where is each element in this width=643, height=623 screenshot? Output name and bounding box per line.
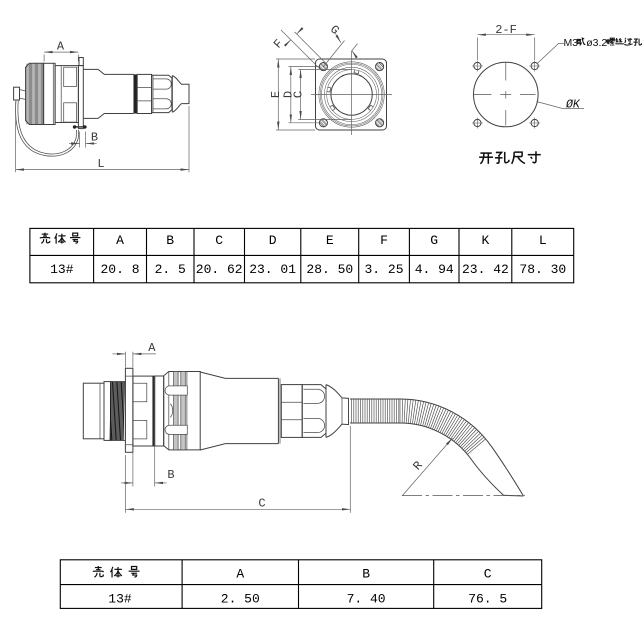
svg-text:K: K [481, 233, 489, 248]
svg-text:ø3.2: ø3.2 [586, 37, 607, 49]
svg-text:G: G [430, 233, 438, 248]
svg-text:4. 94: 4. 94 [415, 262, 454, 277]
svg-text:78. 30: 78. 30 [519, 262, 566, 277]
svg-text:L: L [97, 157, 104, 171]
svg-text:B: B [362, 566, 370, 581]
svg-text:L: L [539, 233, 547, 248]
svg-text:23. 42: 23. 42 [462, 262, 509, 277]
svg-text:A: A [236, 566, 244, 581]
svg-text:B: B [167, 468, 174, 482]
svg-text:E: E [326, 233, 334, 248]
svg-text:23. 01: 23. 01 [249, 262, 296, 277]
svg-text:20. 8: 20. 8 [100, 262, 139, 277]
svg-text:20. 62: 20. 62 [196, 262, 243, 277]
svg-text:76. 5: 76. 5 [468, 592, 507, 607]
svg-text:A: A [116, 233, 124, 248]
svg-text:2-F: 2-F [495, 23, 517, 37]
svg-text:F: F [380, 233, 388, 248]
svg-text:28. 50: 28. 50 [306, 262, 353, 277]
svg-text:2. 50: 2. 50 [221, 592, 260, 607]
svg-text:7. 40: 7. 40 [347, 592, 386, 607]
svg-text:A: A [57, 40, 65, 54]
svg-text:C: C [484, 566, 492, 581]
svg-text:C: C [258, 497, 265, 511]
svg-text:B: B [91, 131, 98, 145]
svg-text:13#: 13# [108, 592, 132, 607]
svg-text:ØK: ØK [565, 99, 581, 112]
svg-text:2. 5: 2. 5 [155, 262, 186, 277]
svg-text:C: C [292, 91, 306, 98]
svg-text:13#: 13# [50, 262, 74, 277]
svg-text:3. 25: 3. 25 [364, 262, 403, 277]
svg-text:B: B [166, 233, 174, 248]
svg-text:C: C [215, 233, 223, 248]
svg-text:M3: M3 [564, 37, 579, 49]
svg-text:A: A [148, 341, 156, 355]
svg-text:D: D [269, 233, 277, 248]
